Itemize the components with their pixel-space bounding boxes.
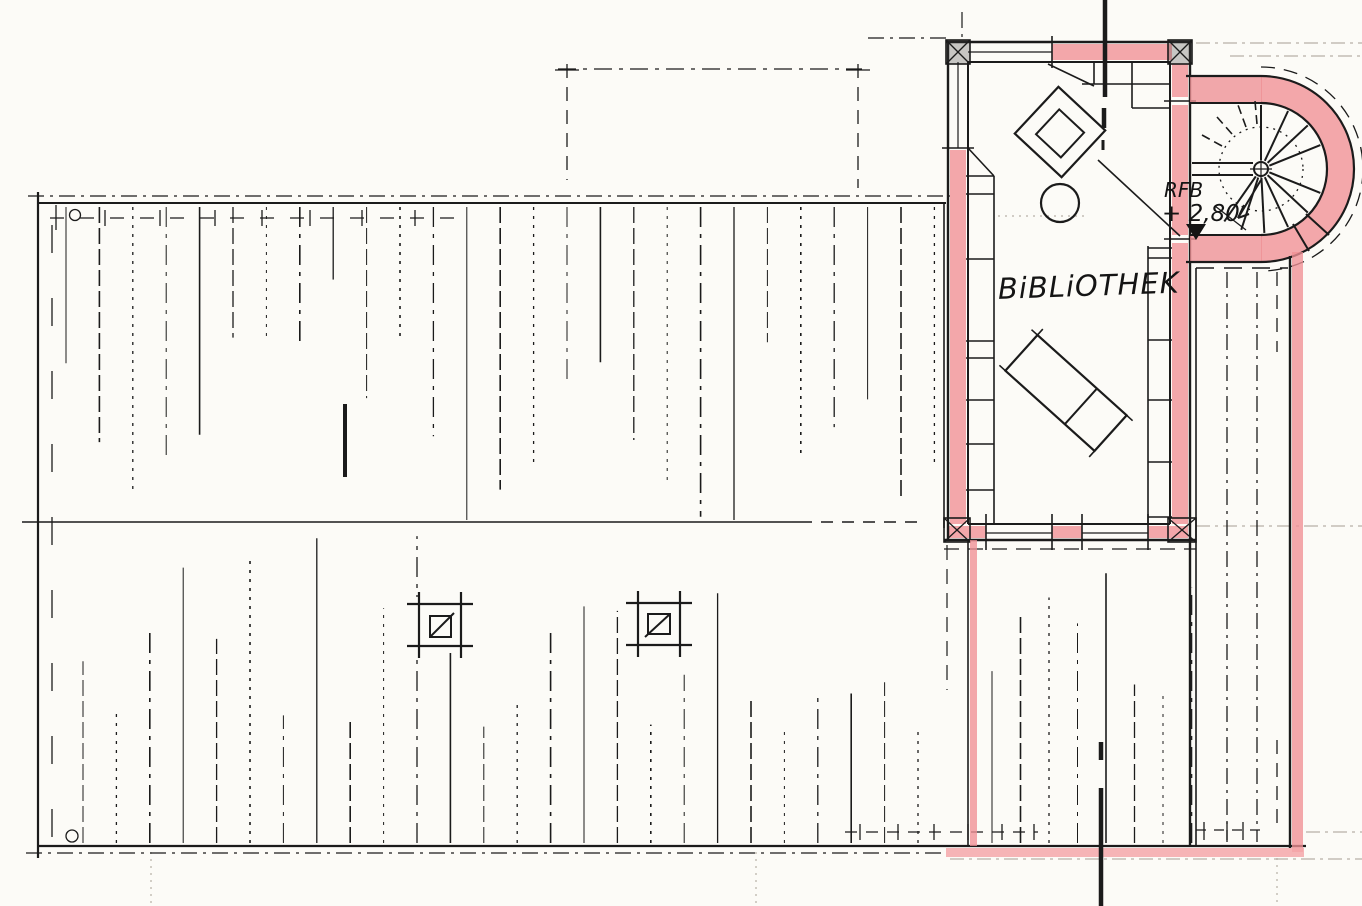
dormer-outline bbox=[555, 64, 870, 188]
library-room bbox=[942, 36, 1196, 846]
armchair bbox=[1015, 87, 1105, 177]
dimension-tie-line-top bbox=[50, 205, 468, 230]
corridor-right bbox=[1196, 252, 1303, 852]
level-marker-abbr: RFB bbox=[1164, 178, 1203, 202]
shelf-top bbox=[1048, 62, 1170, 108]
stair-treads-above-cut bbox=[1202, 101, 1257, 146]
roof-hatching-right bbox=[992, 573, 1192, 843]
section-markers bbox=[868, 0, 1105, 906]
skylight-right bbox=[626, 591, 692, 657]
roof-hatching-lower bbox=[83, 536, 918, 843]
roof-hatching-upper bbox=[66, 207, 934, 520]
desk bbox=[994, 324, 1138, 463]
level-marker-value: + 2,80 bbox=[1162, 201, 1240, 227]
dimension-tie-line-bottom bbox=[66, 824, 1038, 842]
room-label: BiBLiOTHEK bbox=[997, 265, 1181, 305]
side-table bbox=[1041, 184, 1079, 222]
spiral-staircase bbox=[1186, 67, 1362, 271]
lower-right-roof-area bbox=[946, 540, 1304, 857]
architectural-floor-plan: RFB + 2,80 BiBLiOTHEK bbox=[0, 0, 1362, 906]
bottom-edge-highlight bbox=[946, 848, 1304, 857]
bookshelf-left bbox=[966, 148, 994, 524]
skylight-left bbox=[407, 592, 473, 658]
